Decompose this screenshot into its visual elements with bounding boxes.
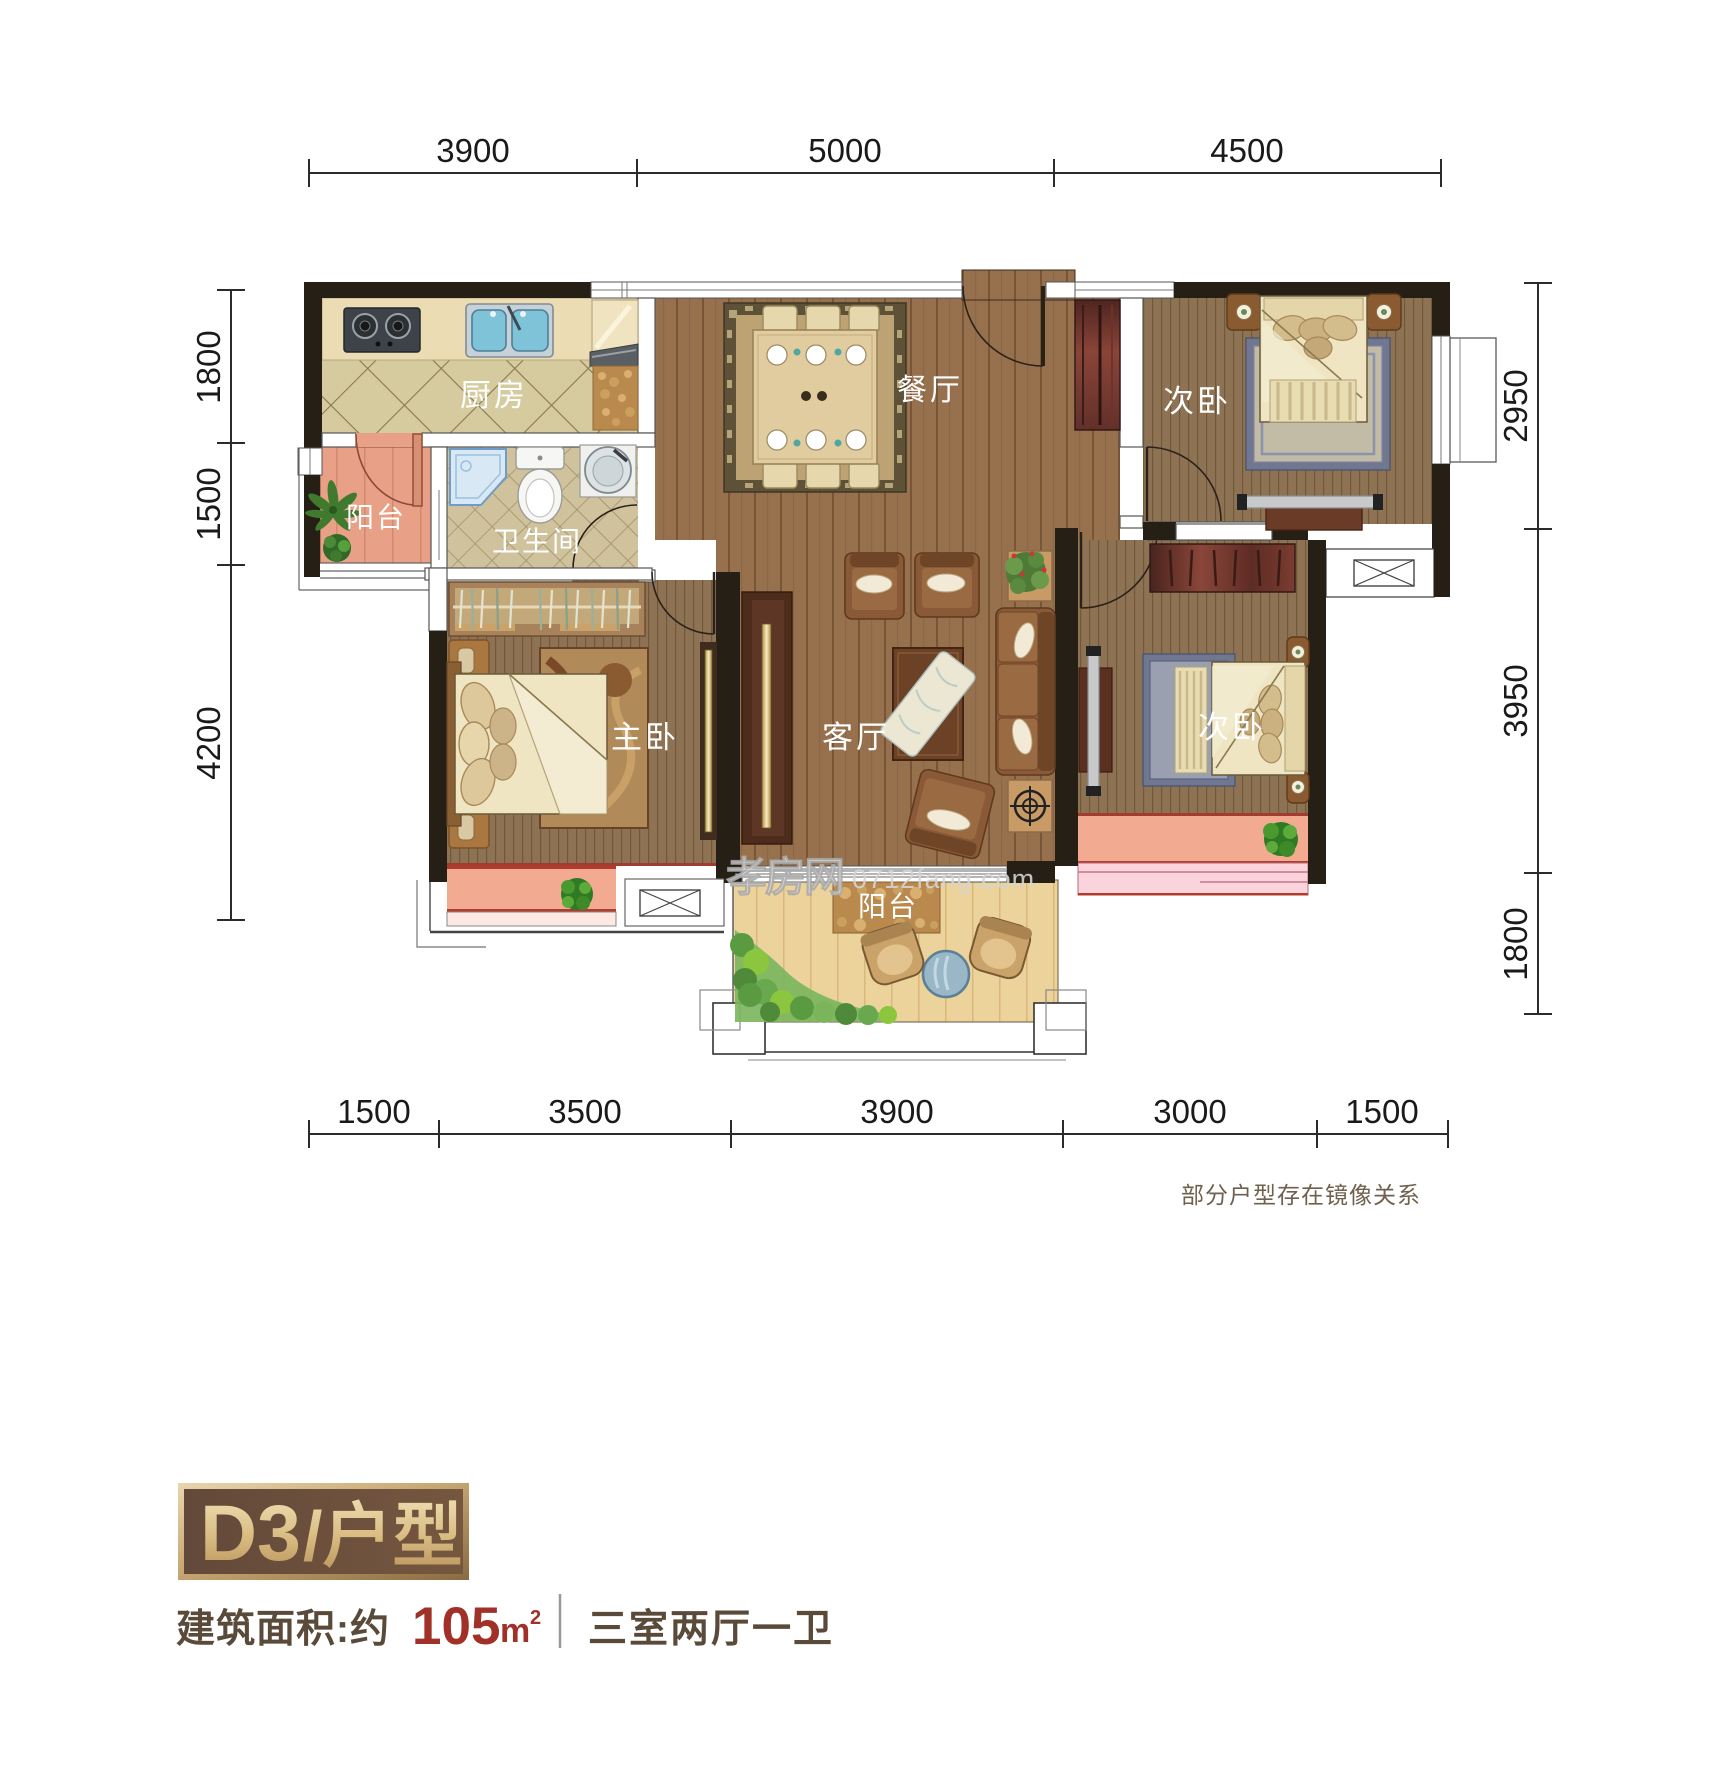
svg-text:3000: 3000 <box>1153 1093 1226 1130</box>
svg-text:0712fang.com: 0712fang.com <box>852 864 1035 894</box>
svg-text:三室两厅一卫: 三室两厅一卫 <box>588 1608 834 1651</box>
svg-text:4500: 4500 <box>1210 132 1283 169</box>
svg-text:餐厅: 餐厅 <box>897 374 963 407</box>
svg-text:1800: 1800 <box>190 330 227 403</box>
svg-text:3500: 3500 <box>548 1093 621 1130</box>
svg-text:次卧: 次卧 <box>1163 384 1231 419</box>
svg-text:孝房网: 孝房网 <box>726 854 843 900</box>
svg-text:阳台: 阳台 <box>858 891 918 922</box>
svg-text:3950: 3950 <box>1497 664 1534 737</box>
svg-text:3900: 3900 <box>860 1093 933 1130</box>
svg-text:建筑面积:约: 建筑面积:约 <box>176 1608 390 1651</box>
svg-text:5000: 5000 <box>808 132 881 169</box>
svg-text:1500: 1500 <box>337 1093 410 1130</box>
svg-text:次卧: 次卧 <box>1198 710 1266 745</box>
svg-text:客厅: 客厅 <box>822 720 890 755</box>
svg-text:D3/户型: D3/户型 <box>200 1488 462 1577</box>
svg-text:1500: 1500 <box>1345 1093 1418 1130</box>
svg-text:105: 105 <box>412 1597 500 1656</box>
svg-text:2950: 2950 <box>1497 369 1534 442</box>
svg-text:厨房: 厨房 <box>460 378 528 413</box>
svg-text:3900: 3900 <box>436 132 509 169</box>
svg-text:卫生间: 卫生间 <box>492 526 582 557</box>
svg-text:2: 2 <box>530 1607 541 1629</box>
svg-text:1800: 1800 <box>1497 907 1534 980</box>
svg-text:4200: 4200 <box>190 706 227 779</box>
svg-text:阳台: 阳台 <box>346 502 406 533</box>
svg-text:主卧: 主卧 <box>611 720 679 755</box>
svg-text:部分户型存在镜像关系: 部分户型存在镜像关系 <box>1181 1182 1421 1208</box>
svg-text:1500: 1500 <box>190 467 227 540</box>
svg-text:m: m <box>500 1612 530 1650</box>
